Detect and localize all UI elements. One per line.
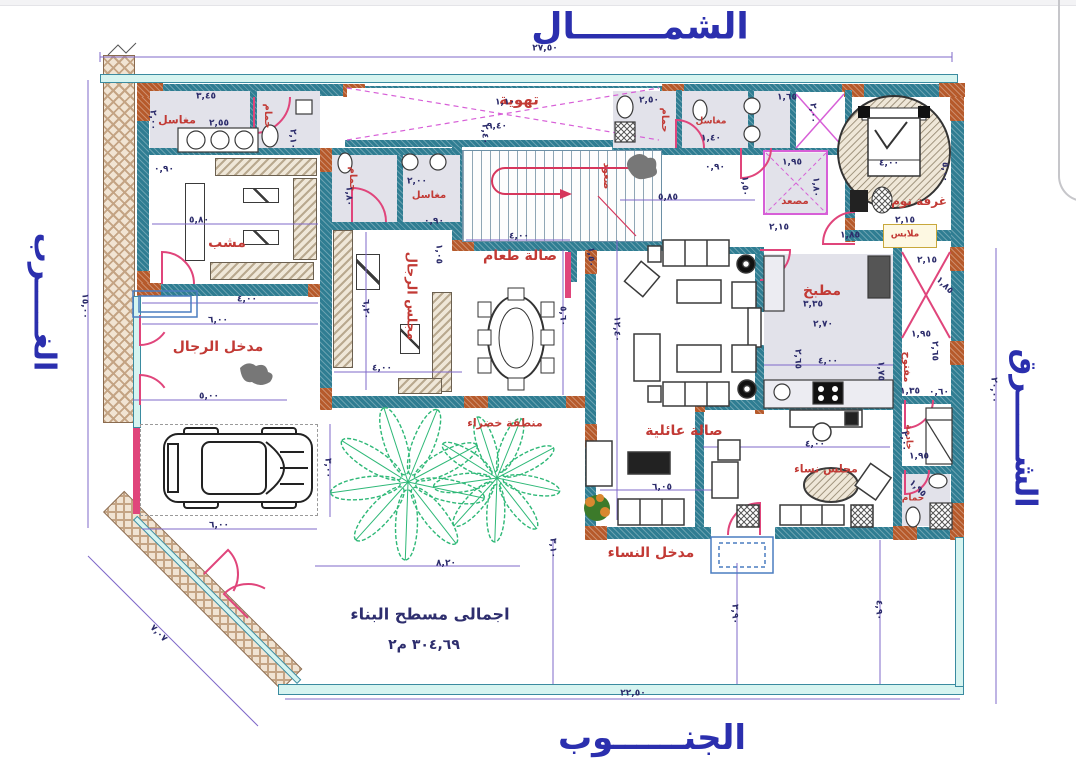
dimension-label: ٢٠,٠٠ [989,377,998,402]
palm-frond-rib [356,482,408,540]
room-label-mashab: مشب [208,236,246,250]
dimension-label: ١,٥٠ [740,176,749,196]
door-swing [204,550,238,591]
dimension-label: ٠,٩٠ [705,164,725,173]
kitchen-fixtures [764,256,893,408]
room-label-open-shaft: مفتوح [901,352,911,383]
dimension-label: ١,٨٠ [344,186,353,206]
dimension-label: ٥,٠٠ [199,393,219,402]
dimension-label: ٤,٠٠ [509,233,529,242]
door-swing [162,252,194,284]
dimension-label: ٢,١٥ [769,224,789,233]
door-swing [352,188,386,222]
dimension-label: ٢,٧٠ [813,321,833,330]
dimension-label: ٣,١٠ [548,538,557,558]
dimension-label: ٢,٠٠ [407,178,427,187]
dimension-label: ٢,٥٥ [209,120,229,129]
room-label-bath-1: حمام [262,104,272,129]
dimension-label: ١٢,٤٠ [612,316,621,341]
dimension-label: ٩,٤٠ [487,123,507,132]
dimension-label: ٥,٨٥ [658,194,678,203]
dimension-label: ١,٥٠ [586,247,595,267]
dimension-label: ١,٤٠ [701,135,721,144]
stairs-arrow [492,168,645,236]
door-swing [140,315,165,345]
total-area-title: اجمالى مسطح البناء [350,605,509,624]
dimension-label: ١٥,٠٠ [80,293,89,318]
dimension-label: ١,٣٥ [900,388,920,397]
dimension-label: ٥,٠٠ [940,162,949,182]
room-label-sinks-2: مغاسل [412,191,446,201]
dimension-label: ٢,٤٠ [480,124,489,144]
dimension-label: ٦,٠٠ [209,522,229,531]
dimension-label: ١,٠٥ [434,244,443,264]
dimension-label: ٢,٠٠ [148,110,157,130]
wall-break-symbol [108,43,136,55]
door-swing [224,584,265,618]
room-label-elevator: مصعد [781,197,808,207]
palm-frond-rib [405,482,408,560]
dining-table [478,288,554,390]
dimension-label: ٣,٣٥ [803,301,823,310]
dimension-label: ٢,٥٠ [639,97,659,106]
dimension-label: ٠,٩٠ [424,218,444,227]
palm-frond-rib [408,445,477,482]
total-area-value: ٣٠٤,٦٩ م٢ [388,637,460,653]
room-label-dining-hall: صالة طعام [483,249,557,263]
dimension-label: ٨,٢٠ [436,560,456,569]
dimension-label: ٣,٠٠ [323,458,332,478]
room-label-stairs-up: صعود [601,163,611,190]
dimension-label: ٦,٢٠ [361,299,370,319]
dimension-label: ١,٩٥ [782,159,802,168]
decor-silhouettes [240,154,657,385]
palm-frond-rib [454,478,497,526]
dimension-label: ٤,٠٠ [237,296,257,305]
car [164,428,312,508]
dimension-label: ٠,٦٠ [929,389,949,398]
dimension-label: ٥,٦٠ [558,306,567,326]
dimension-label: ٢,٦٥ [930,341,939,361]
screenshot-overlay-corner [1058,0,1076,202]
dimension-label: ٣,٤٥ [196,93,216,102]
room-label-closet: ملابس [891,231,920,240]
dimension-label: ٢,١٥ [917,257,937,266]
dimension-label: ٢,٠٠ [899,431,908,451]
dimension-label: ٦,٠٥ [652,484,672,493]
dimension-label: ٤,٩٠ [874,600,883,620]
room-label-mens-majlis: مجلس الرجال [405,252,418,341]
small-plant [584,494,610,521]
dimension-label: ١,١٠ [495,99,515,108]
palm-frond-rib [408,482,456,543]
dimension-label: ٢,١٠ [288,129,297,149]
room-label-bedroom: غرفة نوم [891,195,947,207]
palm-frond-rib [495,478,497,542]
dimension-label: ١,٨٠ [811,177,820,197]
room-label-mens-entrance: مدخل الرجال [173,340,263,354]
dimension-label: ١,٦٥ [777,94,797,103]
dimension-label: ٢,١٥ [895,217,915,226]
dimension-label: ١,٩٥ [909,453,929,462]
dimension-label: ٢,٦٥ [793,349,802,369]
dimension-label: ٤,٠٠ [372,365,392,374]
dimension-label: ٦,٠٠ [208,317,228,326]
dimension-label: ٢,٠٠ [808,103,817,123]
palm-frond-rib [384,408,408,482]
dimension-label: ١,٩٥ [911,331,931,340]
dimension-label: ٤,٠٠ [805,441,825,450]
dimension-label: ٢٢,٥٠ [620,690,645,699]
floor-plan-image: الشمـــــــال الجنــــــوب الغـــــرب ال… [0,0,1076,766]
room-label-green-area: منطقة خضراء [467,418,542,429]
dimension-label: ١,٨٥ [840,232,860,241]
room-label-womens-majlis: مجلس نساء [794,464,858,475]
dimension-label: ٤,٠٠ [879,160,899,169]
dimension-label: ١,٧٥ [876,361,885,381]
room-label-womens-entrance: مدخل النساء [608,546,695,560]
dimension-label: ٤,٠٠ [818,358,838,367]
room-label-sinks-1: مغاسل [158,115,196,126]
room-label-kitchen: مطبخ [803,284,841,298]
dimension-label: ٢٧,٥٠ [532,45,557,54]
room-label-family-hall: صالة عائلية [645,424,722,438]
door-swing [741,148,771,178]
room-label-bath-3: حمام [659,108,669,133]
room-label-sinks-3: مغاسل [696,118,727,127]
dimension-label: ٥,٨٠ [189,217,209,226]
dimension-label: ٠,٩٠ [154,166,174,175]
palm-frond-rib [331,482,408,493]
dimension-label: ٣,٩٠ [730,604,739,624]
